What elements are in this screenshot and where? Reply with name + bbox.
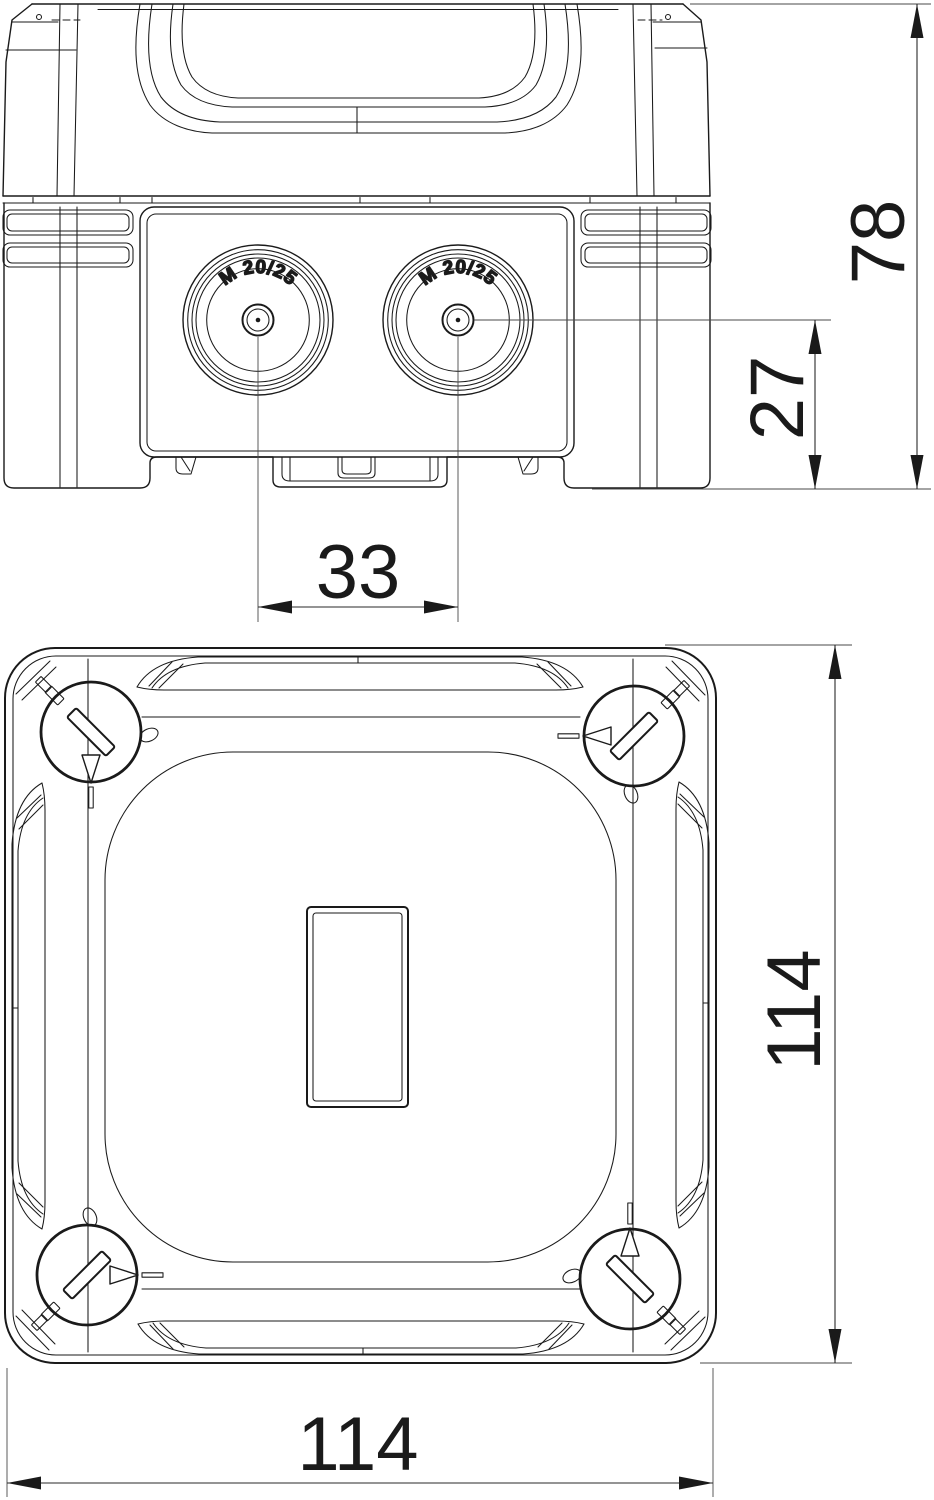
dim-value-27: 27 [735, 356, 820, 441]
dimension-width: 114 [7, 1402, 713, 1490]
lid-pin-right [666, 15, 671, 20]
lid-outer-outline [5, 648, 716, 1363]
dim-value-114-depth: 114 [752, 949, 837, 1070]
plan-view [5, 648, 716, 1363]
foot-left [176, 457, 196, 474]
body-outline [4, 203, 710, 488]
grip-strip-bottom [138, 1321, 584, 1354]
arrowhead-down [809, 455, 822, 489]
dimension-entry-axis-height: 27 [735, 320, 822, 489]
hinge-slats-left [3, 210, 133, 267]
lid-inner-outline [13, 656, 708, 1355]
lid-left-edge [3, 4, 32, 196]
technical-drawing-page: M 20/25 M 20/25 [0, 0, 934, 1500]
lid-right-edge [683, 4, 710, 196]
side-view: M 20/25 M 20/25 [3, 4, 711, 488]
entry-panel [140, 207, 574, 457]
corner-tab [45, 686, 64, 705]
entry-size-label-left: M 20/25 [216, 257, 301, 290]
dim-value-78: 78 [836, 200, 921, 285]
lid-pin-left [37, 15, 42, 20]
entry-size-label-right: M 20/25 [416, 257, 501, 290]
dimension-overall-height: 78 [836, 4, 924, 489]
junction-box-dimensional-drawing: M 20/25 M 20/25 [0, 0, 934, 1500]
arrowhead-down [829, 1329, 842, 1363]
grip-strip-left [12, 783, 45, 1229]
foot-right [518, 457, 538, 474]
arrowhead-up [829, 645, 842, 679]
hinge-slats-right [581, 210, 711, 267]
handle-recess [136, 4, 581, 133]
arrowhead-down [911, 455, 924, 489]
arrowhead-right [424, 601, 458, 614]
label-window [307, 907, 408, 1107]
mounting-tab [282, 457, 438, 481]
direction-arrow-marker [82, 755, 100, 783]
arrowhead-left [258, 601, 292, 614]
dim-value-33: 33 [316, 530, 401, 615]
fastener-slot [67, 708, 115, 756]
dimension-depth: 114 [752, 645, 842, 1363]
lid-center-panel [105, 752, 616, 1262]
arrowhead-left [7, 1477, 41, 1490]
dim-value-114-width: 114 [297, 1402, 418, 1487]
arrowhead-up [809, 320, 822, 354]
arrowhead-right [679, 1477, 713, 1490]
grip-strip-top [137, 657, 583, 690]
grip-strip-right [676, 782, 709, 1228]
dimension-entry-spacing: 33 [258, 530, 458, 615]
arrowhead-up [911, 4, 924, 38]
